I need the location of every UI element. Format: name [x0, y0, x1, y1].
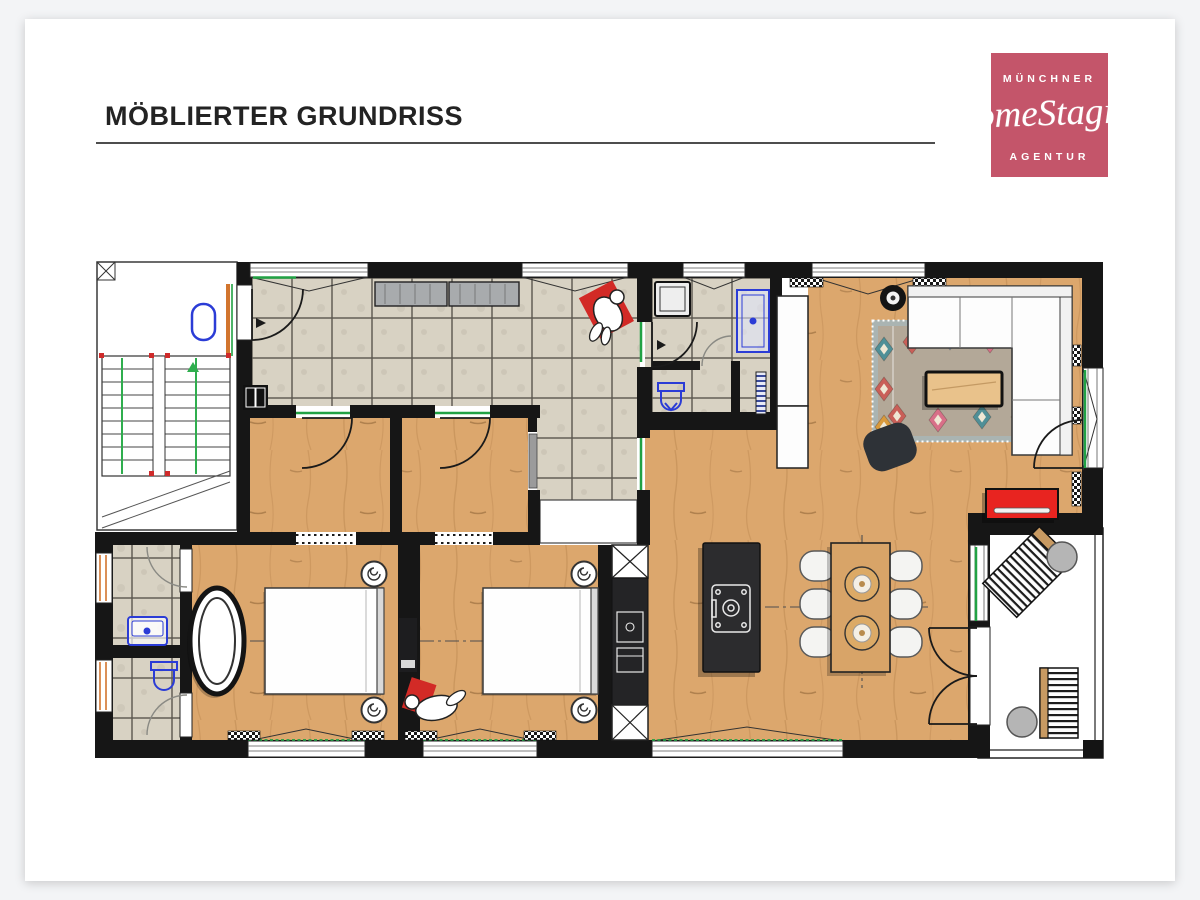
closet-room-2-floor: [402, 418, 528, 532]
living-floor-b: [645, 428, 975, 740]
stairwell-floor: [97, 262, 237, 530]
shoe-cabinet: [243, 385, 268, 410]
shower-icon: [737, 290, 769, 352]
bed-double: [263, 588, 384, 696]
kitchen-dining: [698, 543, 922, 677]
floor-plan-image: [0, 0, 1200, 900]
side-table-icon-2: [1007, 707, 1037, 737]
coffee-table: [922, 372, 1002, 410]
lounger-icon-2: [1040, 668, 1078, 738]
tall-unit-column: [612, 545, 648, 740]
headboard: [377, 588, 384, 694]
speaker-icon: [880, 285, 906, 311]
sideboard-red: [982, 489, 1058, 523]
wall-radiator: [529, 434, 537, 488]
entrance-door-leaf: [226, 284, 230, 356]
sink-icon: [128, 617, 167, 645]
bathtub-icon: [190, 588, 244, 694]
kitchen-island: [698, 543, 760, 677]
sideboard-gray: [375, 282, 519, 306]
dining-table: [827, 543, 890, 676]
wardrobe-white: [777, 296, 808, 468]
bed-double-2: [481, 588, 598, 696]
side-table-icon: [1047, 542, 1077, 572]
hall-niche: [540, 500, 637, 543]
radiator-icon: [756, 372, 766, 414]
corridor-floor: [537, 406, 637, 502]
closet-room-1-floor: [250, 418, 396, 532]
tv-detail: [401, 660, 415, 668]
